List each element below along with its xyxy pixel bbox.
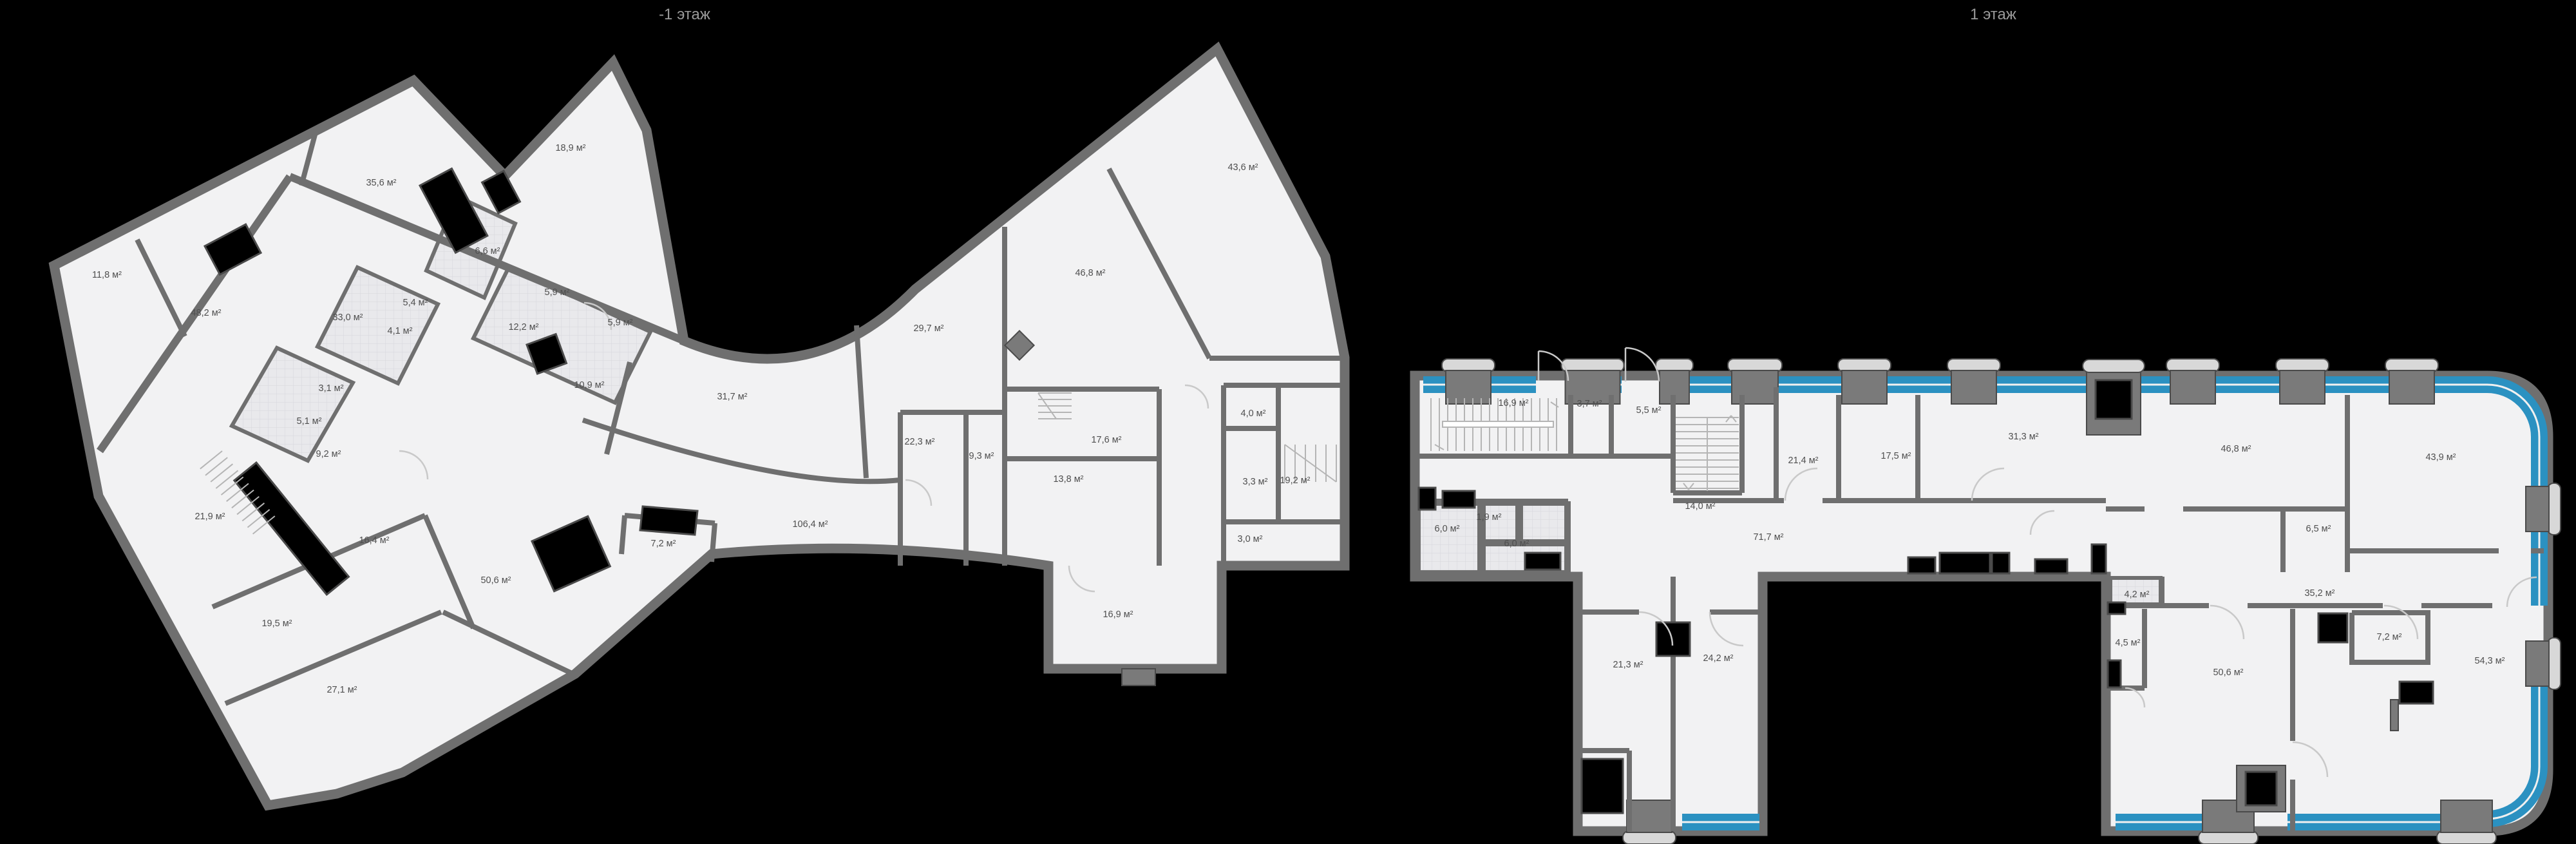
room-area-label: 31,3 м²: [2008, 432, 2038, 442]
room-area-label: 19,2 м²: [1280, 475, 1310, 486]
room-area-label: 11,8 м²: [92, 270, 122, 280]
room-area-label: 27,1 м²: [327, 685, 357, 695]
wall-stub: [1122, 669, 1155, 686]
room-area-label: 4,5 м²: [2116, 638, 2141, 648]
floorplan-drawing: -1 этаж 1 этаж 11,8 м²48,2 м²35,6 м²18,9…: [0, 0, 2576, 844]
room-area-label: 5,9 м²: [608, 318, 633, 328]
room-area-label: 6,6 м²: [475, 246, 500, 256]
pillar: [2170, 370, 2215, 404]
room-area-label: 48,2 м²: [191, 308, 221, 318]
screenshot-canvas: -1 этаж 1 этаж 11,8 м²48,2 м²35,6 м²18,9…: [0, 0, 2576, 844]
floor-title-right: 1 этаж: [1970, 6, 2016, 23]
room-area-label: 33,0 м²: [332, 312, 363, 323]
room-area-label: 24,2 м²: [1703, 653, 1733, 664]
room-area-label: 3,0 м²: [1238, 534, 1263, 544]
room-area-label: 3,7 м²: [1577, 399, 1602, 409]
room-area-label: 43,6 м²: [1227, 162, 1258, 173]
room-area-label: 21,4 м²: [1788, 456, 1818, 466]
room-area-label: 14,0 м²: [1685, 501, 1715, 512]
room-area-label: 4,0 м²: [1241, 408, 1266, 419]
room-area-label: 12,2 м²: [508, 322, 538, 332]
room-area-label: 16,9 м²: [1103, 609, 1133, 620]
floor-plan-1: [1415, 348, 2561, 844]
room-area-label: 5,1 м²: [297, 416, 322, 427]
room-area-label: 3,1 м²: [319, 383, 344, 394]
room-area-label: 7,2 м²: [2377, 632, 2402, 642]
pillar: [1446, 370, 1491, 404]
floor-plan-minus-1: [54, 49, 1345, 805]
room-area-label: 22,3 м²: [904, 437, 934, 447]
room-area-label: 13,8 м²: [1053, 474, 1083, 484]
shaft-pillar: [2083, 360, 2145, 435]
room-area-label: 54,3 м²: [2474, 656, 2505, 666]
room-area-label: 16,9 м²: [1498, 398, 1528, 408]
room-area-label: 71,7 м²: [1753, 532, 1783, 542]
room-area-label: 9,3 м²: [969, 451, 994, 461]
room-area-label: 6,5 м²: [2306, 524, 2331, 534]
room-area-label: 21,3 м²: [1613, 660, 1643, 670]
room-area-label: 3,3 м²: [1243, 477, 1268, 487]
room-area-label: 46,8 м²: [1075, 268, 1105, 278]
room-area-label: 7,2 м²: [651, 539, 676, 549]
pillar: [1732, 370, 1778, 404]
room-area-label: 29,7 м²: [913, 323, 943, 334]
pillar: [1951, 370, 1996, 404]
room-area-label: 17,5 м²: [1880, 451, 1911, 461]
room-area-label: 4,1 м²: [388, 326, 413, 336]
room-area-label: 21,9 м²: [194, 512, 225, 522]
room-area-label: 31,7 м²: [717, 392, 747, 402]
pillar: [2441, 800, 2492, 832]
room-area-label: 5,5 м²: [1636, 405, 1662, 416]
room-area-label: 4,2 м²: [2125, 590, 2150, 600]
room-area-label: 50,6 м²: [480, 575, 511, 586]
room-area-label: 5,4 м²: [403, 298, 428, 308]
room-area-label: 16,4 м²: [359, 535, 389, 546]
room-area-label: 10,9 м²: [574, 380, 604, 390]
pillar: [2526, 641, 2549, 686]
room-area-label: 5,9 м²: [545, 287, 570, 298]
room-area-label: 43,9 м²: [2425, 452, 2456, 463]
room-area-label: 9,2 м²: [316, 449, 341, 459]
room-area-label: 6,0 м²: [1435, 524, 1460, 534]
room-area-label: 46,8 м²: [2221, 444, 2251, 454]
pillar: [1627, 800, 1672, 832]
room-area-label: 1,9 м²: [1477, 512, 1502, 523]
floor-title-left: -1 этаж: [659, 6, 710, 23]
room-area-label: 6,0 м²: [1504, 539, 1529, 549]
room-area-label: 50,6 м²: [2213, 667, 2243, 678]
pillar: [1842, 370, 1887, 404]
room-area-label: 18,9 м²: [555, 143, 585, 153]
room-area-label: 35,6 м²: [366, 178, 396, 188]
pillar: [2526, 486, 2549, 532]
room-area-label: 106,4 м²: [792, 519, 828, 530]
room-area-label: 19,5 м²: [261, 619, 292, 629]
pillar: [2280, 370, 2325, 404]
pillar: [2389, 370, 2434, 404]
room-area-label: 35,2 м²: [2304, 588, 2334, 599]
room-area-label: 17,6 м²: [1091, 435, 1121, 445]
